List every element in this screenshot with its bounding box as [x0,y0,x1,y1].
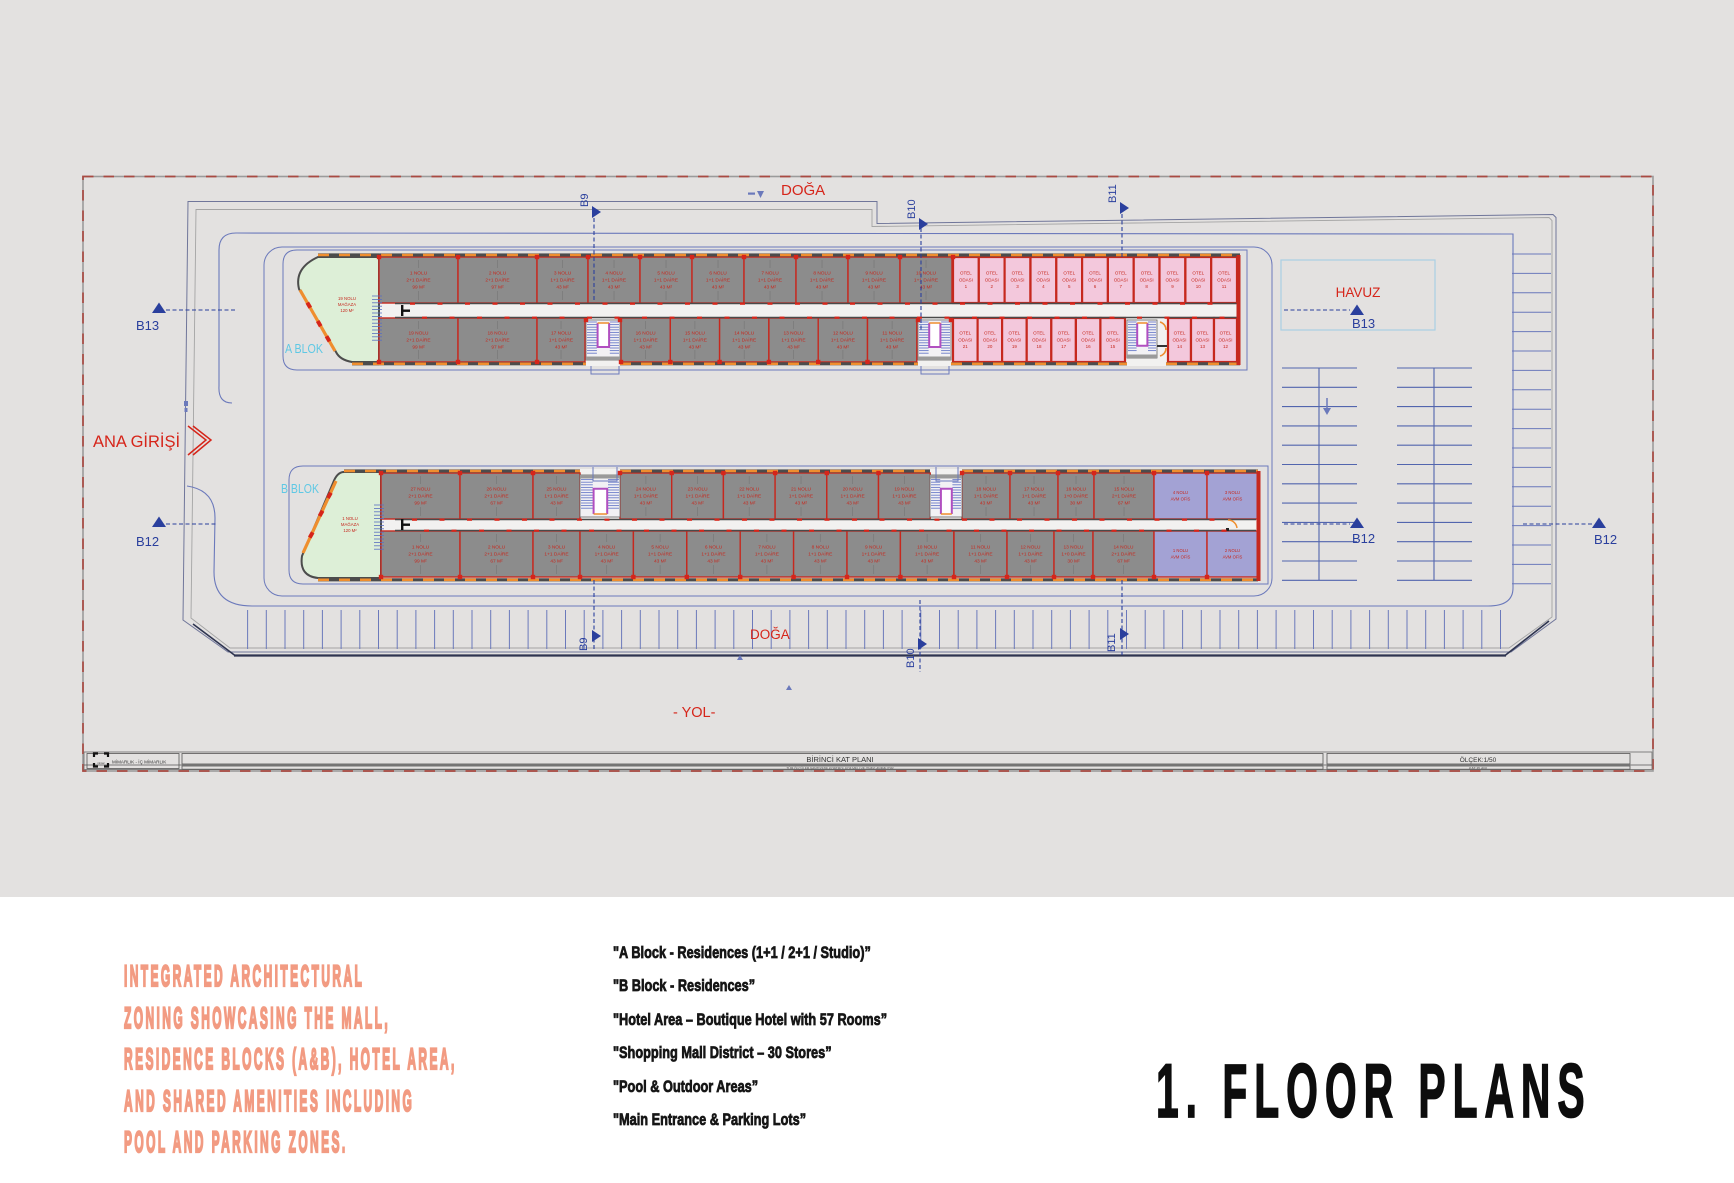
svg-text:HAVUZ: HAVUZ [1336,285,1381,300]
svg-text:KAT PLANI: KAT PLANI [1469,767,1487,771]
svg-text:A BLOK: A BLOK [285,342,324,356]
svg-text:ANA GİRİŞİ: ANA GİRİŞİ [93,432,180,451]
svg-text:B13: B13 [136,318,159,333]
svg-text:4 NOLUAVM OFİS: 4 NOLUAVM OFİS [1171,490,1191,501]
svg-text:1 NOLUMAĞAZA120 M²: 1 NOLUMAĞAZA120 M² [341,516,359,533]
svg-text:3 NOLUAVM OFİS: 3 NOLUAVM OFİS [1223,490,1243,501]
svg-text:2 NOLUAVM OFİS: 2 NOLUAVM OFİS [1223,548,1243,559]
svg-text:B11: B11 [1106,633,1118,652]
svg-text:B12: B12 [136,534,159,549]
svg-text:B BLOK: B BLOK [281,482,320,496]
svg-text:1 NOLUAVM OFİS: 1 NOLUAVM OFİS [1171,548,1191,559]
svg-text:MİMARLIK - İÇ MİMARLIK: MİMARLIK - İÇ MİMARLIK [112,759,167,765]
svg-text:TÜM ÖLÇÜLER ŞANTİYEDE KONTROL: TÜM ÖLÇÜLER ŞANTİYEDE KONTROL EDİLMELİ V… [786,766,894,771]
svg-text:B9: B9 [578,638,590,651]
svg-text:BİRİNCİ KAT PLANI: BİRİNCİ KAT PLANI [806,755,873,764]
svg-text:ÖLÇEK:1/50: ÖLÇEK:1/50 [1460,756,1497,764]
svg-text:19 NOLUMAĞAZA120 M²: 19 NOLUMAĞAZA120 M² [338,296,356,313]
svg-text:DOĞA: DOĞA [781,182,825,199]
svg-text:B12: B12 [1594,532,1617,547]
svg-text:B11: B11 [1107,184,1119,203]
svg-text:B10: B10 [905,648,917,668]
svg-text:B9: B9 [579,194,591,207]
svg-text:- YOL-: - YOL- [673,705,716,721]
svg-text:mimar: mimar [97,761,104,765]
svg-text:B12: B12 [1352,531,1375,546]
svg-text:DOĞA: DOĞA [750,627,790,642]
svg-text:B10: B10 [906,199,918,219]
svg-text:B13: B13 [1352,316,1375,331]
